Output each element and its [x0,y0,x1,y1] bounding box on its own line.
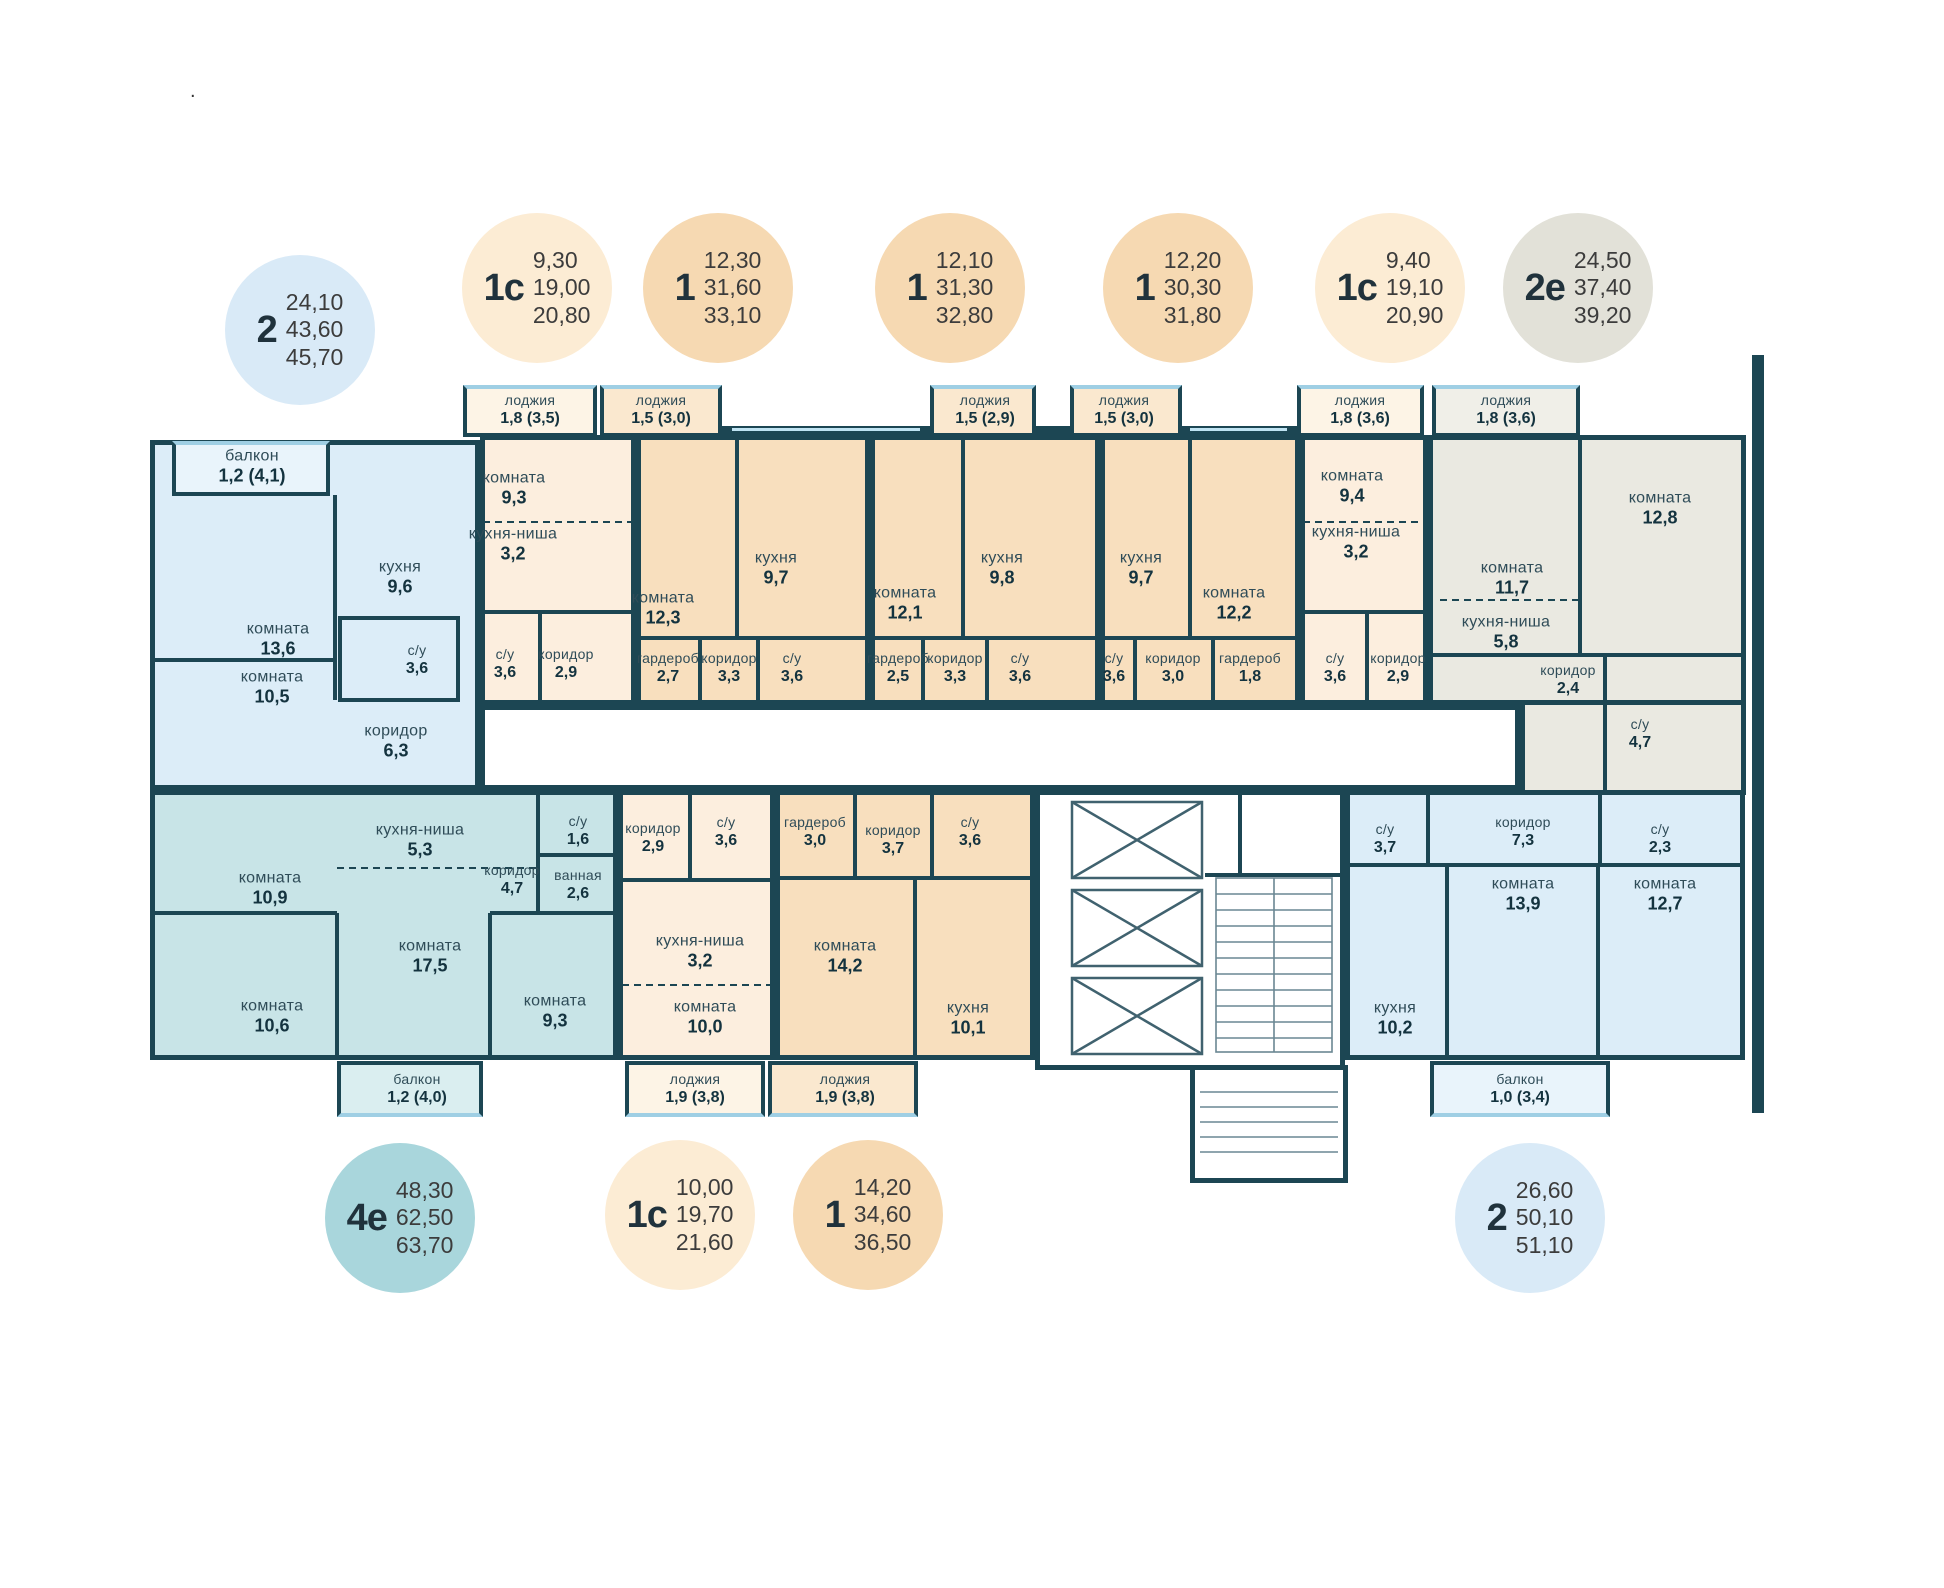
room-label-loggia: лоджия1,5 (3,0) [631,392,691,428]
type-label: 1с [484,267,524,310]
apartment-type-badge-1: 1 12,2030,3031,80 [1103,213,1253,363]
room-label-bathroom: с/у1,6 [567,813,589,849]
room-label-bathroom: с/у3,6 [406,642,428,678]
room-label-corridor: коридор2,9 [1370,650,1426,686]
room-label-bathroom: с/у3,6 [1009,650,1031,686]
room-label-loggia: лоджия1,8 (3,6) [1330,392,1390,428]
room-label-wardrobe: гардероб1,8 [1219,650,1281,686]
floor-plan-canvas: . [0,0,1944,1588]
area-list: 12,3031,6033,10 [704,247,762,328]
apartment-type-badge-4e: 4е 48,3062,5063,70 [325,1143,475,1293]
room-label-room: комната12,3 [632,589,695,630]
room-label-bathroom: с/у3,7 [1374,821,1396,857]
room-label-loggia: лоджия1,8 (3,6) [1476,392,1536,428]
window-line [1190,428,1287,431]
apartment-type-badge-2: 2 26,6050,1051,10 [1455,1143,1605,1293]
room-label-loggia: лоджия1,9 (3,8) [665,1071,725,1107]
room-label-corridor: коридор3,3 [701,650,757,686]
room-label-room: комната9,4 [1321,467,1384,508]
apartment-type-badge-1: 1 14,2034,6036,50 [793,1140,943,1290]
room-label-loggia: лоджия1,5 (3,0) [1094,392,1154,428]
type-label: 2е [1525,267,1565,310]
room-label-bathroom: с/у3,6 [1103,650,1125,686]
room-label-kitchen-niche: кухня-ниша3,2 [1312,523,1401,564]
room-label-kitchen-niche: кухня-ниша3,2 [656,932,745,973]
room-label-bathroom: с/у3,6 [1324,650,1346,686]
apartment-type-badge-1: 1 12,3031,6033,10 [643,213,793,363]
exterior-wall-segment [1035,426,1070,438]
apartment-type-badge-1s: 1с 10,0019,7021,60 [605,1140,755,1290]
room-label-corridor: коридор4,7 [484,862,540,898]
area-list: 9,4019,1020,90 [1386,247,1444,328]
room-label-kitchen: кухня10,2 [1374,999,1416,1040]
window-line [732,428,920,431]
room-label-kitchen: кухня10,1 [947,999,989,1040]
room-label-bathroom: с/у3,6 [494,646,516,682]
room-label-kitchen: кухня9,8 [981,549,1023,590]
room-label-loggia: лоджия1,9 (3,8) [815,1071,875,1107]
type-label: 1с [627,1194,667,1237]
room-label-corridor: коридор2,9 [538,646,594,682]
apartment-type-badge-1s: 1с 9,3019,0020,80 [462,213,612,363]
stray-dot: . [190,80,196,103]
room-label-corridor: коридор3,0 [1145,650,1201,686]
right-exterior-wall [1752,355,1764,1113]
room-label-room: комната10,5 [241,668,304,709]
room-label-bathroom: с/у3,6 [715,814,737,850]
stair-elevator-core [1035,790,1345,1070]
area-list: 10,0019,7021,60 [676,1174,734,1255]
room-label-kitchen: кухня9,6 [379,558,421,599]
area-list: 12,2030,3031,80 [1164,247,1222,328]
room-label-loggia: лоджия1,8 (3,5) [500,392,560,428]
room-label-kitchen-niche: кухня-ниша3,2 [469,525,558,566]
room-label-room: комната17,5 [399,937,462,978]
room-label-wardrobe: гардероб2,5 [867,650,929,686]
room-label-bathroom: с/у3,6 [781,650,803,686]
room-label-room: комната10,0 [674,998,737,1039]
area-list: 24,1043,6045,70 [286,289,344,370]
common-corridor [480,705,1520,790]
type-label: 1 [675,267,695,310]
type-label: 2 [257,309,277,352]
room-label-kitchen: кухня9,7 [1120,549,1162,590]
room-label-room: комната9,3 [483,469,546,510]
room-label-room: комната13,9 [1492,875,1555,916]
type-label: 1с [1337,267,1377,310]
area-list: 48,3062,5063,70 [396,1177,454,1258]
room-label-balcony: балкон1,0 (3,4) [1490,1071,1550,1107]
room-label-wardrobe: гардероб2,7 [637,650,699,686]
type-label: 2 [1487,1197,1507,1240]
room-label-room: комната12,8 [1629,489,1692,530]
type-label: 1 [1135,267,1155,310]
room-label-corridor: коридор2,4 [1540,662,1596,698]
room-label-kitchen: кухня9,7 [755,549,797,590]
apartment-type-badge-2: 2 24,1043,6045,70 [225,255,375,405]
room-label-bathroom: с/у2,3 [1649,821,1671,857]
type-label: 4е [347,1197,387,1240]
area-list: 14,2034,6036,50 [854,1174,912,1255]
room-label-corridor: коридор7,3 [1495,814,1551,850]
apartment-type-badge-2e: 2е 24,5037,4039,20 [1503,213,1653,363]
apartment-type-badge-1s: 1с 9,4019,1020,90 [1315,213,1465,363]
room-label-kitchen-niche: кухня-ниша5,8 [1462,613,1551,654]
room-label-room: комната9,3 [524,992,587,1033]
room-label-room: комната10,6 [241,997,304,1038]
room-label-corridor: коридор6,3 [364,722,427,763]
room-label-room: комната14,2 [814,937,877,978]
room-label-balcony: балкон1,2 (4,1) [218,447,285,488]
apartment-type-badge-1: 1 12,1031,3032,80 [875,213,1025,363]
area-list: 26,6050,1051,10 [1516,1177,1574,1258]
area-list: 24,5037,4039,20 [1574,247,1632,328]
room-label-room: комната12,1 [874,584,937,625]
area-list: 9,3019,0020,80 [533,247,591,328]
room-label-room: комната12,2 [1203,584,1266,625]
area-list: 12,1031,3032,80 [936,247,994,328]
room-label-corridor: коридор2,9 [625,820,681,856]
room-label-room: комната12,7 [1634,875,1697,916]
room-label-corridor: коридор3,3 [927,650,983,686]
room-label-bath: ванная2,6 [554,867,602,903]
type-label: 1 [907,267,927,310]
room-label-room: комната13,6 [247,620,310,661]
room-label-balcony: балкон1,2 (4,0) [387,1071,447,1107]
type-label: 1 [825,1194,845,1237]
entrance-vestibule [1190,1065,1348,1183]
room-label-loggia: лоджия1,5 (2,9) [955,392,1015,428]
room-label-kitchen-niche: кухня-ниша5,3 [376,821,465,862]
room-label-bathroom: с/у4,7 [1629,716,1651,752]
room-label-room: комната11,7 [1481,559,1544,600]
room-label-wardrobe: гардероб3,0 [784,814,846,850]
room-label-bathroom: с/у3,6 [959,814,981,850]
room-label-corridor: коридор3,7 [865,822,921,858]
room-label-room: комната10,9 [239,869,302,910]
